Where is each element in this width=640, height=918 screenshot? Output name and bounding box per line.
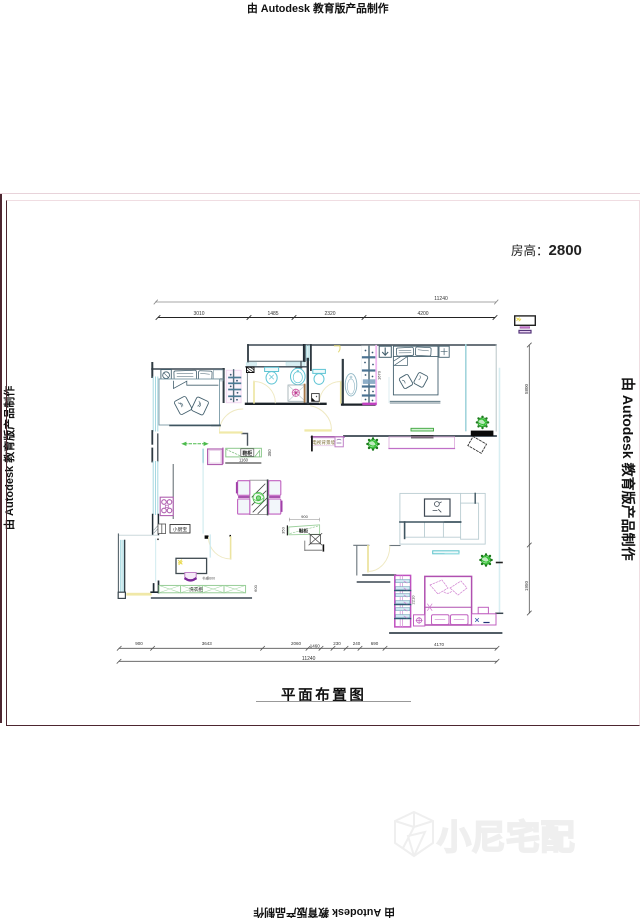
svg-text:鞋柜: 鞋柜	[242, 450, 252, 457]
svg-text:小厨宝: 小厨宝	[173, 526, 188, 533]
svg-text:11240: 11240	[434, 296, 448, 302]
svg-text:1670: 1670	[376, 370, 381, 380]
svg-text:900: 900	[301, 514, 308, 519]
svg-text:4200: 4200	[417, 311, 428, 317]
svg-text:240: 240	[353, 641, 361, 646]
svg-text:书桌600: 书桌600	[202, 576, 215, 581]
svg-text:690: 690	[371, 641, 379, 646]
svg-text:600: 600	[253, 584, 258, 591]
svg-text:1485: 1485	[267, 311, 278, 317]
svg-text:3010: 3010	[193, 311, 204, 317]
svg-text:1160: 1160	[239, 458, 249, 463]
svg-text:2210: 2210	[410, 595, 415, 605]
svg-text:230: 230	[333, 641, 341, 646]
svg-text:900: 900	[135, 641, 143, 646]
svg-text:1460: 1460	[310, 644, 321, 649]
svg-text:2320: 2320	[324, 311, 335, 317]
svg-text:3643: 3643	[202, 641, 213, 646]
svg-text:11240: 11240	[302, 656, 316, 662]
svg-text:350: 350	[267, 449, 272, 457]
svg-text:洗衣柜: 洗衣柜	[189, 586, 203, 593]
svg-text:2060: 2060	[291, 641, 302, 646]
svg-text:5800: 5800	[524, 383, 529, 394]
svg-text:350: 350	[280, 526, 285, 533]
svg-text:1950: 1950	[524, 580, 529, 591]
svg-text:4170: 4170	[434, 642, 445, 647]
svg-text:电视背景墙: 电视背景墙	[312, 439, 335, 446]
svg-text:鞋柜: 鞋柜	[299, 528, 309, 535]
